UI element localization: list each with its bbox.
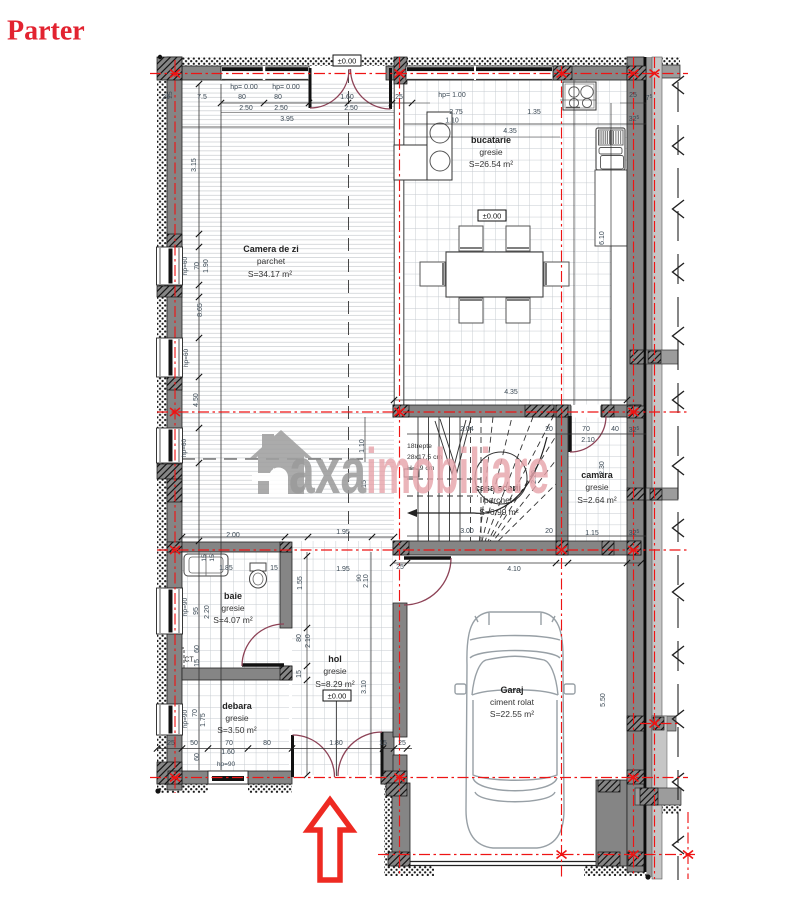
svg-text:25: 25 (167, 91, 174, 99)
svg-text:15: 15 (201, 554, 208, 562)
svg-text:25: 25 (396, 564, 404, 571)
svg-text:3.00: 3.00 (460, 528, 474, 535)
svg-text:2.20: 2.20 (204, 605, 211, 619)
svg-text:±0.00: ±0.00 (338, 57, 357, 66)
svg-text:hp= 0.00: hp= 0.00 (272, 84, 300, 91)
svg-text:15: 15 (194, 659, 201, 667)
svg-text:hp=60: hp=60 (181, 438, 188, 457)
svg-text:±0.00: ±0.00 (328, 692, 347, 701)
svg-text:Garaj: Garaj (500, 685, 523, 695)
svg-text:80: 80 (274, 94, 282, 101)
svg-text:2.10: 2.10 (581, 437, 595, 444)
svg-text:S=6.99 m²: S=6.99 m² (479, 507, 519, 517)
svg-text:7.5: 7.5 (197, 94, 207, 101)
svg-text:hp=90: hp=90 (182, 709, 189, 728)
svg-text:3.15: 3.15 (191, 158, 198, 172)
svg-text:40: 40 (611, 426, 619, 433)
svg-text:25: 25 (398, 740, 406, 747)
svg-text:baie: baie (224, 591, 242, 601)
svg-text:S=34.17 m²: S=34.17 m² (248, 269, 292, 279)
svg-text:parchet: parchet (257, 256, 286, 266)
svg-text:50: 50 (190, 740, 198, 747)
svg-text:20: 20 (545, 426, 553, 433)
svg-text:4.35: 4.35 (504, 389, 518, 396)
svg-text:Parter: Parter (7, 16, 85, 47)
svg-text:1.60: 1.60 (221, 749, 235, 756)
svg-text:4.35: 4.35 (503, 128, 517, 135)
svg-text:imobiliare: imobiliare (366, 435, 549, 507)
svg-text:S=26.54 m²: S=26.54 m² (469, 159, 513, 169)
svg-text:20: 20 (545, 528, 553, 535)
svg-text:±0.00: ±0.00 (483, 212, 502, 221)
svg-text:2.50: 2.50 (239, 105, 253, 112)
svg-text:gresie: gresie (323, 666, 346, 676)
svg-text:hp=90: hp=90 (217, 761, 236, 768)
svg-text:CT: CT (184, 657, 194, 664)
svg-text:70: 70 (194, 262, 201, 270)
svg-text:hp= 1.00: hp= 1.00 (438, 92, 466, 99)
svg-text:8.65: 8.65 (197, 303, 204, 317)
svg-text:bucatarie: bucatarie (471, 135, 511, 145)
svg-text:debara: debara (222, 701, 253, 711)
svg-text:80: 80 (296, 634, 303, 642)
svg-text:gresie: gresie (585, 482, 608, 492)
svg-text:hp=60: hp=60 (182, 256, 189, 275)
svg-text:15: 15 (270, 565, 278, 572)
svg-text:1.95: 1.95 (336, 566, 350, 573)
svg-text:60: 60 (194, 753, 201, 761)
svg-text:1.90: 1.90 (203, 259, 210, 273)
svg-text:60: 60 (194, 645, 201, 653)
svg-text:2.00: 2.00 (226, 532, 240, 539)
svg-text:hp= 0.00: hp= 0.00 (230, 84, 258, 91)
svg-text:S=2.64 m²: S=2.64 m² (577, 495, 617, 505)
svg-text:4.50: 4.50 (193, 393, 200, 407)
svg-text:2.75: 2.75 (449, 109, 463, 116)
svg-text:2.04: 2.04 (460, 426, 474, 433)
svg-text:70: 70 (582, 426, 590, 433)
svg-text:axa: axa (289, 435, 366, 507)
svg-text:1.95: 1.95 (336, 529, 350, 536)
svg-text:1.10: 1.10 (445, 118, 459, 125)
svg-text:95: 95 (193, 607, 200, 615)
svg-text:gresie: gresie (479, 147, 502, 157)
svg-text:15: 15 (296, 670, 303, 678)
svg-text:1.60: 1.60 (340, 94, 354, 101)
svg-text:2.10: 2.10 (363, 574, 370, 588)
svg-text:1.85: 1.85 (219, 565, 233, 572)
svg-text:25: 25 (167, 740, 175, 747)
svg-text:camara: camara (581, 470, 614, 480)
svg-text:70: 70 (225, 740, 233, 747)
svg-text:25: 25 (395, 94, 403, 101)
svg-text:2.10: 2.10 (305, 634, 312, 648)
svg-text:2.50: 2.50 (274, 105, 288, 112)
svg-text:1.55: 1.55 (297, 576, 304, 590)
svg-text:Camera de zi: Camera de zi (243, 244, 299, 254)
svg-text:ciment rolat: ciment rolat (490, 697, 535, 707)
svg-text:15: 15 (379, 740, 387, 747)
svg-text:S=8.29 m²: S=8.29 m² (315, 679, 355, 689)
svg-text:3.10: 3.10 (361, 680, 368, 694)
svg-text:hol: hol (328, 654, 342, 664)
svg-text:2.50: 2.50 (344, 105, 358, 112)
svg-text:1.35: 1.35 (527, 109, 541, 116)
svg-text:15: 15 (209, 554, 216, 562)
svg-text:3.95: 3.95 (280, 116, 294, 123)
svg-text:hp=90: hp=90 (182, 597, 189, 616)
svg-text:S=4.07 m²: S=4.07 m² (213, 615, 253, 625)
svg-text:1.75: 1.75 (200, 713, 207, 727)
svg-text:90: 90 (356, 574, 363, 582)
svg-text:S=22.55 m²: S=22.55 m² (490, 709, 534, 719)
svg-text:S=3.50 m²: S=3.50 m² (217, 725, 257, 735)
svg-text:gresie: gresie (221, 603, 244, 613)
svg-text:1.80: 1.80 (329, 740, 343, 747)
svg-text:4.10: 4.10 (507, 566, 521, 573)
svg-text:hp=60: hp=60 (183, 348, 190, 367)
svg-text:70: 70 (192, 709, 199, 717)
svg-text:80: 80 (238, 94, 246, 101)
svg-text:gresie: gresie (225, 713, 248, 723)
svg-text:6.10: 6.10 (599, 231, 606, 245)
svg-text:80: 80 (263, 740, 271, 747)
svg-text:25: 25 (629, 92, 637, 99)
svg-text:5.50: 5.50 (600, 693, 607, 707)
svg-text:1.15: 1.15 (585, 530, 599, 537)
